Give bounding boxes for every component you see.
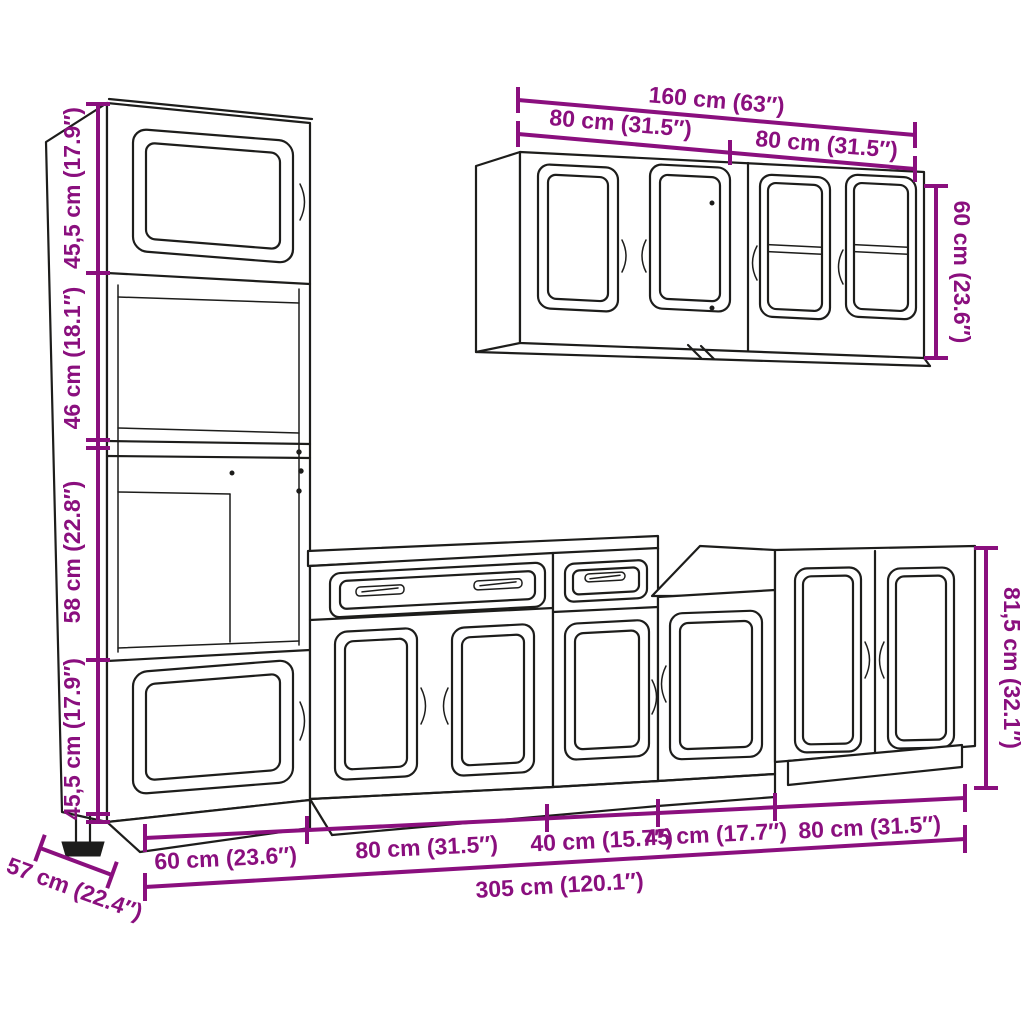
base-80-door-left bbox=[335, 628, 417, 780]
tall-cabinet-bottom-door bbox=[133, 660, 293, 795]
dim-label-base-height: 81,5 cm (32.1″) bbox=[999, 587, 1024, 749]
kitchen-cabinet-dimension-diagram: 45,5 cm (17.9″) 46 cm (18.1″) 58 cm (22.… bbox=[0, 0, 1024, 1024]
base-80-door-right bbox=[452, 624, 534, 776]
base-80r-door-right bbox=[888, 567, 954, 748]
wall-door-1 bbox=[538, 164, 618, 312]
wall-cabinet-side-panel bbox=[476, 152, 520, 352]
hinge-hole bbox=[710, 201, 714, 205]
dim-label-wall-height: 60 cm (23.6″) bbox=[949, 201, 975, 344]
dim-label-tall-section-2: 46 cm (18.1″) bbox=[59, 287, 85, 430]
base-cabinet-45 bbox=[652, 546, 775, 781]
dim-label-tall-section-4: 45,5 cm (17.9″) bbox=[59, 658, 85, 820]
diagram-canvas: 45,5 cm (17.9″) 46 cm (18.1″) 58 cm (22.… bbox=[0, 0, 1024, 1024]
tall-oven-cabinet-unit bbox=[46, 99, 312, 856]
base-40-door bbox=[565, 620, 649, 760]
hinge-hole bbox=[710, 306, 714, 310]
wall-glass-door-2 bbox=[846, 174, 916, 319]
dim-label-tall-section-1: 45,5 cm (17.9″) bbox=[59, 107, 85, 269]
tall-cabinet-top-door bbox=[133, 129, 293, 264]
base-80r-door-left bbox=[795, 567, 861, 752]
base-cabinet-80 bbox=[310, 553, 553, 799]
wall-glass-door-1 bbox=[760, 174, 830, 319]
wall-door-2 bbox=[650, 164, 730, 312]
base-cabinet-40 bbox=[553, 548, 658, 787]
dim-label-tall-section-3: 58 cm (22.8″) bbox=[59, 481, 85, 624]
base-40-drawer bbox=[565, 560, 647, 602]
base-cabinet-80-right bbox=[775, 546, 975, 785]
wall-cabinet-run bbox=[476, 152, 930, 366]
base-45-door bbox=[670, 610, 762, 759]
